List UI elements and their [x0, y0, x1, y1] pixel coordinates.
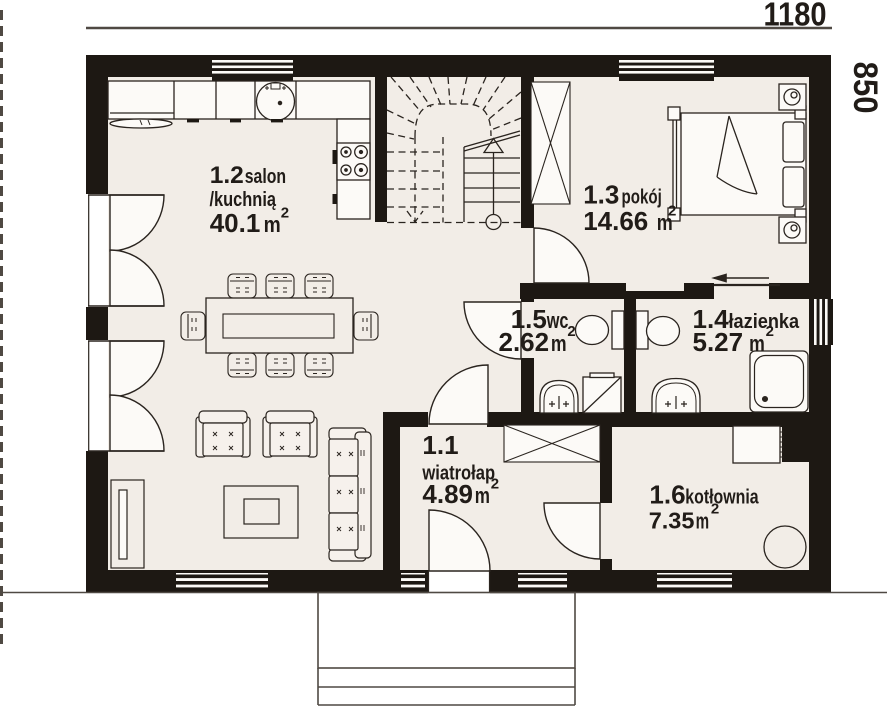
svg-text:7.35: 7.35 [649, 507, 695, 533]
svg-text:14.66: 14.66 [583, 206, 648, 236]
svg-text:m: m [475, 483, 490, 508]
svg-text:2: 2 [281, 204, 289, 221]
svg-text:m: m [551, 331, 567, 356]
svg-text:pokój: pokój [622, 185, 662, 208]
svg-text:wc: wc [546, 308, 568, 333]
svg-text:5.27: 5.27 [693, 327, 744, 357]
svg-text:2: 2 [766, 323, 774, 340]
svg-text:40.1: 40.1 [210, 208, 261, 238]
svg-text:2: 2 [668, 202, 676, 219]
svg-text:kotłownia: kotłownia [685, 485, 759, 508]
svg-text:4.89: 4.89 [422, 479, 473, 509]
svg-text:salon: salon [245, 165, 286, 188]
svg-text:1.1: 1.1 [422, 430, 458, 460]
svg-text:1.6: 1.6 [649, 479, 685, 509]
svg-text:1180: 1180 [764, 0, 827, 33]
svg-text:1.2: 1.2 [210, 162, 244, 189]
svg-text:1.3: 1.3 [583, 179, 619, 209]
svg-text:2: 2 [567, 323, 575, 340]
svg-text:2: 2 [711, 501, 719, 518]
svg-text:850: 850 [846, 62, 884, 114]
svg-text:m: m [696, 508, 710, 533]
svg-text:m: m [749, 331, 765, 356]
svg-text:2: 2 [491, 475, 499, 492]
svg-text:2.62: 2.62 [499, 327, 550, 357]
svg-text:m: m [264, 212, 281, 237]
